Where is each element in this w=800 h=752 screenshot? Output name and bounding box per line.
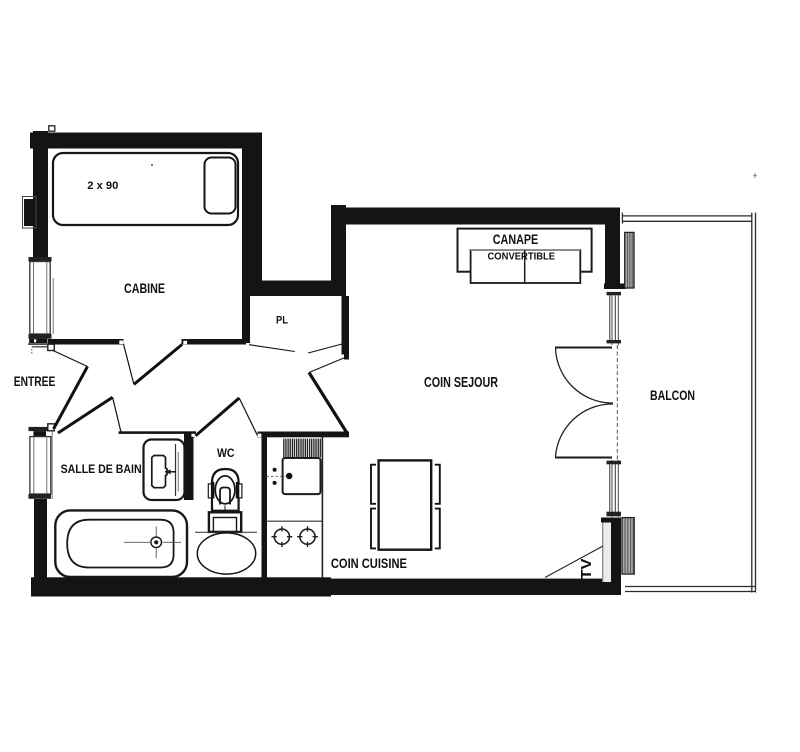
svg-text:TV: TV xyxy=(579,558,595,579)
svg-text:BALCON: BALCON xyxy=(650,388,695,403)
svg-text:PL: PL xyxy=(276,315,288,327)
svg-text:ENTREE: ENTREE xyxy=(14,374,56,389)
svg-text:SALLE DE BAIN: SALLE DE BAIN xyxy=(61,462,142,476)
svg-text:CONVERTIBLE: CONVERTIBLE xyxy=(488,252,556,263)
svg-text:WC: WC xyxy=(217,446,235,460)
svg-text:COIN CUISINE: COIN CUISINE xyxy=(331,556,407,571)
svg-text:COIN SEJOUR: COIN SEJOUR xyxy=(424,375,498,391)
svg-text:CANAPE: CANAPE xyxy=(493,231,538,247)
svg-text:CABINE: CABINE xyxy=(124,281,165,296)
svg-text:2 x 90: 2 x 90 xyxy=(87,180,118,192)
